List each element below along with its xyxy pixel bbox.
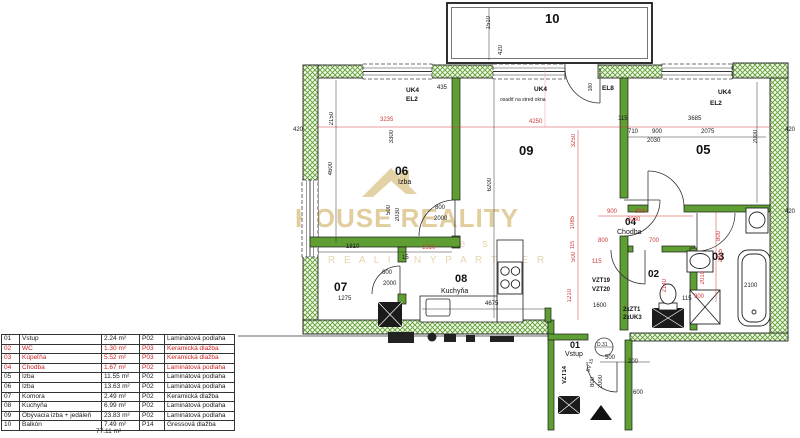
cell-floor: Gressová dlažba (165, 421, 235, 431)
kitchen-sink (426, 299, 450, 316)
cell-code: P03 (140, 354, 165, 364)
window-top-right (662, 64, 732, 79)
cell-area: 1.67 m² (102, 363, 140, 373)
cell-code: P02 (140, 411, 165, 421)
cell-no: 07 (2, 392, 20, 402)
shower-area (690, 290, 720, 324)
windows (302, 64, 732, 257)
legend-row: 08Kuchyňa6.99 m²P02Laminátová podlaha (2, 402, 235, 412)
cell-floor: Keramická dlažba (165, 344, 235, 354)
door-entrance (587, 362, 617, 392)
bath-sink (687, 251, 713, 272)
cell-name: Izba (20, 373, 102, 383)
cell-name: Kúpeľňa (20, 354, 102, 364)
washing-machine (746, 208, 768, 233)
cell-no: 05 (2, 373, 20, 383)
cell-area: 1.30 m² (102, 344, 140, 354)
cell-no: 10 (2, 421, 20, 431)
cell-name: Kuchyňa (20, 402, 102, 412)
cell-floor: Laminátová podlaha (165, 373, 235, 383)
balcony-outline (447, 3, 652, 63)
door-room06 (419, 200, 455, 236)
cell-no: 03 (2, 354, 20, 364)
cell-area: 2.24 m² (102, 335, 140, 345)
cell-area: 23.83 m² (102, 411, 140, 421)
cell-name: Balkón (20, 421, 102, 431)
legend-table: 01Vstup2.24 m²P02Laminátová podlaha 02WC… (1, 334, 235, 431)
window-top-left (363, 64, 432, 79)
bath-fixtures (659, 208, 770, 326)
legend-row: 02WC1.30 m²P03Keramická dlažba (2, 344, 235, 354)
legend-row: 07Komora2.49 m²P02Keramická dlažba (2, 392, 235, 402)
cell-floor: Laminátová podlaha (165, 335, 235, 345)
cell-area: 5.52 m² (102, 354, 140, 364)
cell-name: Izba (20, 382, 102, 392)
floorplan-page: HOUSE REALITY e s t a t e s R E A L I T … (0, 0, 800, 438)
legend-row: 05Izba11.55 m²P02Laminátová podlaha (2, 373, 235, 383)
cell-name: Chodba (20, 363, 102, 373)
cell-code: P14 (140, 421, 165, 431)
cell-floor: Laminátová podlaha (165, 382, 235, 392)
door-room05 (648, 171, 684, 207)
cell-no: 02 (2, 344, 20, 354)
cell-name: WC (20, 344, 102, 354)
stove (498, 262, 522, 294)
cell-no: 01 (2, 335, 20, 345)
cell-floor: Laminátová podlaha (165, 363, 235, 373)
toilet (659, 284, 677, 310)
cell-code: P02 (140, 392, 165, 402)
cell-no: 09 (2, 411, 20, 421)
window-balcony (493, 64, 565, 79)
cell-area: 13.63 m² (102, 382, 140, 392)
cell-code: P03 (140, 344, 165, 354)
cell-name: Vstup (20, 335, 102, 345)
cell-floor: Keramická dlažba (165, 392, 235, 402)
cell-area: 6.99 m² (102, 402, 140, 412)
legend-row: 09Obývacia izba + jedáleň23.83 m²P02Lami… (2, 411, 235, 421)
door-room07 (372, 266, 400, 294)
cell-no: 04 (2, 363, 20, 373)
cell-code: P02 (140, 402, 165, 412)
cell-name: Komora (20, 392, 102, 402)
cell-floor: Keramická dlažba (165, 354, 235, 364)
cell-name: Obývacia izba + jedáleň (20, 411, 102, 421)
cell-area: 11.55 m² (102, 373, 140, 383)
legend-row: 01Vstup2.24 m²P02Laminátová podlaha (2, 335, 235, 345)
cell-no: 06 (2, 382, 20, 392)
cell-area: 2.49 m² (102, 392, 140, 402)
legend-row: 03Kúpeľňa5.52 m²P03Keramická dlažba (2, 354, 235, 364)
bathtub (738, 250, 770, 326)
cell-code: P02 (140, 335, 165, 345)
legend-row: 04Chodba1.67 m²P02Laminátová podlaha (2, 363, 235, 373)
entrance-marker (590, 338, 613, 420)
cell-code: P02 (140, 363, 165, 373)
cell-code: P02 (140, 373, 165, 383)
cell-floor: Laminátová podlaha (165, 402, 235, 412)
balcony-door-opening (565, 64, 598, 79)
cell-no: 08 (2, 402, 20, 412)
cell-code: P02 (140, 382, 165, 392)
legend-total: 77.11 m² (96, 428, 121, 435)
cell-floor: Laminátová podlaha (165, 411, 235, 421)
legend-row: 06Izba13.63 m²P02Laminátová podlaha (2, 382, 235, 392)
